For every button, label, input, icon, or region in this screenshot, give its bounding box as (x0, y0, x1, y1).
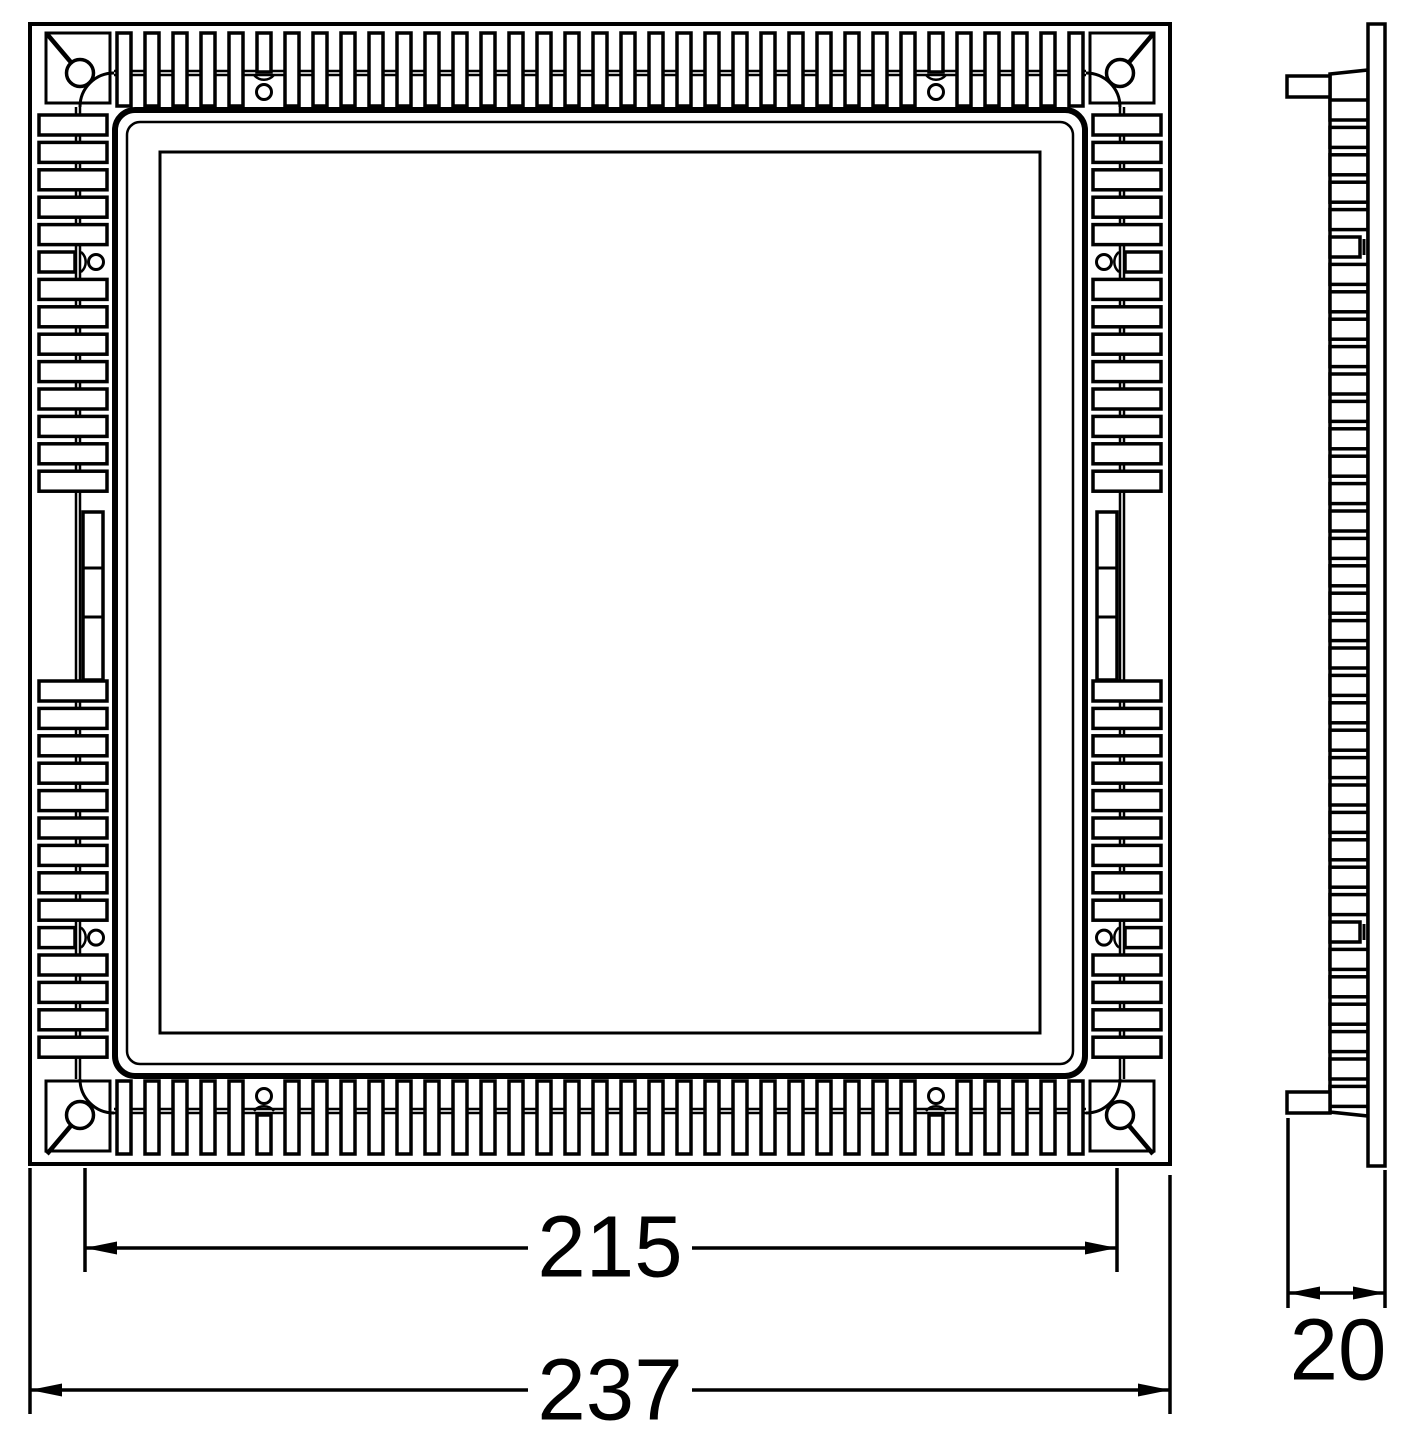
fin (1125, 252, 1161, 272)
technical-drawing: 215 237 20 (0, 0, 1413, 1433)
fin (39, 334, 107, 354)
fin (145, 1081, 159, 1154)
fin (901, 1081, 915, 1154)
dim-depth-label: 20 (1290, 1302, 1387, 1399)
side-fin (1330, 867, 1368, 887)
fin (425, 1081, 439, 1154)
side-fin (1330, 511, 1368, 531)
fin (1093, 471, 1161, 491)
fin (1093, 225, 1161, 245)
fin (1093, 900, 1161, 920)
fin (1093, 1010, 1161, 1030)
fin (39, 791, 107, 811)
fin (39, 362, 107, 382)
fin (39, 900, 107, 920)
side-fin-notch (1330, 922, 1360, 942)
fin (285, 33, 299, 106)
fin (39, 982, 107, 1002)
side-fin (1330, 456, 1368, 476)
fin (1013, 1081, 1027, 1154)
fin (285, 1081, 299, 1154)
arrowhead (85, 1242, 117, 1255)
fin (39, 389, 107, 409)
fin (313, 33, 327, 106)
fin (39, 170, 107, 190)
fin (425, 33, 439, 106)
fin (39, 1037, 107, 1057)
side-tab-bottom (1287, 1092, 1330, 1113)
fin (565, 33, 579, 106)
fin (453, 1081, 467, 1154)
mounting-hole (89, 930, 104, 945)
fin (1041, 1081, 1055, 1154)
fin (453, 33, 467, 106)
side-fin (1330, 648, 1368, 668)
side-fin-notch (1330, 237, 1360, 257)
fin (39, 818, 107, 838)
fin (649, 1081, 663, 1154)
fin (173, 33, 187, 106)
fin (1093, 708, 1161, 728)
corner-boss-circle (1107, 1102, 1134, 1129)
light-surface (160, 152, 1040, 1033)
corner-boss-circle (1107, 60, 1134, 87)
fin (1093, 389, 1161, 409)
mounting-hole (89, 255, 104, 270)
fin (39, 197, 107, 217)
side-fin (1330, 538, 1368, 558)
fin (1093, 873, 1161, 893)
side-fin (1330, 703, 1368, 723)
fin (1093, 791, 1161, 811)
arrowhead (1353, 1287, 1385, 1300)
fin (1069, 33, 1083, 106)
fin (1093, 279, 1161, 299)
outer-square (30, 24, 1170, 1164)
fin (39, 115, 107, 135)
fin (1093, 1037, 1161, 1057)
fin (39, 1010, 107, 1030)
fin (39, 252, 75, 272)
fin (1013, 33, 1027, 106)
side-fin (1330, 100, 1368, 120)
fin (481, 1081, 495, 1154)
fin (705, 1081, 719, 1154)
fin (1093, 681, 1161, 701)
drawing-canvas: 215 237 20 (0, 0, 1413, 1433)
side-fin (1330, 675, 1368, 695)
fin (145, 33, 159, 106)
side-fin (1330, 566, 1368, 586)
fin (761, 33, 775, 106)
side-view (1287, 24, 1385, 1166)
fin (565, 1081, 579, 1154)
front-view (30, 24, 1170, 1164)
fin (789, 33, 803, 106)
corner-boss-circle (67, 60, 94, 87)
fin (1069, 1081, 1083, 1154)
fin (761, 1081, 775, 1154)
fin (1093, 416, 1161, 436)
side-fin (1330, 977, 1368, 997)
corner-boss-circle (67, 1102, 94, 1129)
fin (1093, 845, 1161, 865)
heatsink-rails (76, 71, 1124, 1113)
fin (397, 1081, 411, 1154)
mounting-hole (1097, 930, 1112, 945)
fin (1093, 763, 1161, 783)
arrowhead (1138, 1384, 1170, 1397)
side-fin (1330, 949, 1368, 969)
fin (341, 1081, 355, 1154)
arrowhead (1288, 1287, 1320, 1300)
fin (257, 1115, 271, 1154)
side-fin (1330, 319, 1368, 339)
fin (1093, 334, 1161, 354)
arrowhead (1085, 1242, 1117, 1255)
side-fin (1330, 621, 1368, 641)
fin (39, 873, 107, 893)
fin (1093, 170, 1161, 190)
fin (39, 142, 107, 162)
fin (229, 1081, 243, 1154)
fin (369, 33, 383, 106)
side-fin (1330, 401, 1368, 421)
dim-inner-width-label: 215 (537, 1199, 682, 1296)
fin (341, 33, 355, 106)
fin (481, 33, 495, 106)
frame-inner-line (127, 122, 1073, 1064)
fin (201, 33, 215, 106)
fin (117, 33, 131, 106)
side-fin (1330, 1086, 1368, 1106)
fin (677, 33, 691, 106)
side-tab-top (1287, 76, 1330, 97)
side-fin (1330, 429, 1368, 449)
fin (621, 1081, 635, 1154)
fin (39, 736, 107, 756)
side-fin (1330, 1032, 1368, 1052)
fin (39, 444, 107, 464)
fin (39, 471, 107, 491)
side-fin (1330, 730, 1368, 750)
fin (593, 33, 607, 106)
fin (39, 681, 107, 701)
fin (817, 33, 831, 106)
side-fin (1330, 840, 1368, 860)
mounting-hole (257, 1089, 272, 1104)
side-fin (1330, 758, 1368, 778)
side-fin (1330, 347, 1368, 367)
fin (957, 1081, 971, 1154)
spring-clip-right (1097, 512, 1117, 680)
side-faceplate (1368, 24, 1385, 1166)
fin (817, 1081, 831, 1154)
fins-bottom (117, 1081, 1083, 1154)
fin (789, 1081, 803, 1154)
dim-outer-width-label: 237 (537, 1342, 682, 1433)
fin (39, 845, 107, 865)
fin (1125, 928, 1161, 948)
fin (929, 33, 943, 72)
fin (117, 1081, 131, 1154)
side-fin (1330, 155, 1368, 175)
fin (733, 33, 747, 106)
fin (201, 1081, 215, 1154)
side-fin (1330, 484, 1368, 504)
fin (1041, 33, 1055, 106)
side-fin (1330, 1059, 1368, 1079)
fin (845, 33, 859, 106)
fins-top (117, 33, 1083, 106)
mounting-hole (1097, 255, 1112, 270)
side-fin (1330, 182, 1368, 202)
fin (1093, 115, 1161, 135)
side-fin (1330, 812, 1368, 832)
frame-outer (115, 110, 1085, 1076)
fin (39, 225, 107, 245)
fin (1093, 955, 1161, 975)
fin (509, 33, 523, 106)
fin (39, 307, 107, 327)
fin (1093, 818, 1161, 838)
fin (957, 33, 971, 106)
fin (537, 1081, 551, 1154)
side-fin (1330, 593, 1368, 613)
dimension-215: 215 (85, 1168, 1117, 1296)
fin (1093, 142, 1161, 162)
fin (901, 33, 915, 106)
fin (229, 33, 243, 106)
side-fin (1330, 895, 1368, 915)
fin (39, 763, 107, 783)
side-fin (1330, 374, 1368, 394)
fin (733, 1081, 747, 1154)
fin (39, 955, 107, 975)
side-fin (1330, 210, 1368, 230)
fin (509, 1081, 523, 1154)
fin (39, 928, 75, 948)
fin (705, 33, 719, 106)
fin (369, 1081, 383, 1154)
fin (649, 33, 663, 106)
fin (873, 33, 887, 106)
mounting-hole (257, 85, 272, 100)
fin (593, 1081, 607, 1154)
fin (537, 33, 551, 106)
fin (677, 1081, 691, 1154)
side-fin (1330, 785, 1368, 805)
side-fin (1330, 264, 1368, 284)
mounting-hole (929, 85, 944, 100)
mounting-hole (929, 1089, 944, 1104)
fin (1093, 982, 1161, 1002)
fin (39, 708, 107, 728)
fin (313, 1081, 327, 1154)
fin (39, 416, 107, 436)
fin (1093, 197, 1161, 217)
fin (1093, 736, 1161, 756)
corner-details (46, 33, 1154, 1154)
fin (985, 1081, 999, 1154)
spring-clip-left (83, 512, 103, 680)
fin (257, 33, 271, 72)
fin (985, 33, 999, 106)
fin (397, 33, 411, 106)
fin (929, 1115, 943, 1154)
fin (1093, 362, 1161, 382)
fin (845, 1081, 859, 1154)
side-fin (1330, 1004, 1368, 1024)
side-fin (1330, 292, 1368, 312)
fin (39, 279, 107, 299)
fin (621, 33, 635, 106)
arrowhead (30, 1384, 62, 1397)
fin (173, 1081, 187, 1154)
side-fin (1330, 127, 1368, 147)
fin (1093, 307, 1161, 327)
fin (873, 1081, 887, 1154)
fin (1093, 444, 1161, 464)
